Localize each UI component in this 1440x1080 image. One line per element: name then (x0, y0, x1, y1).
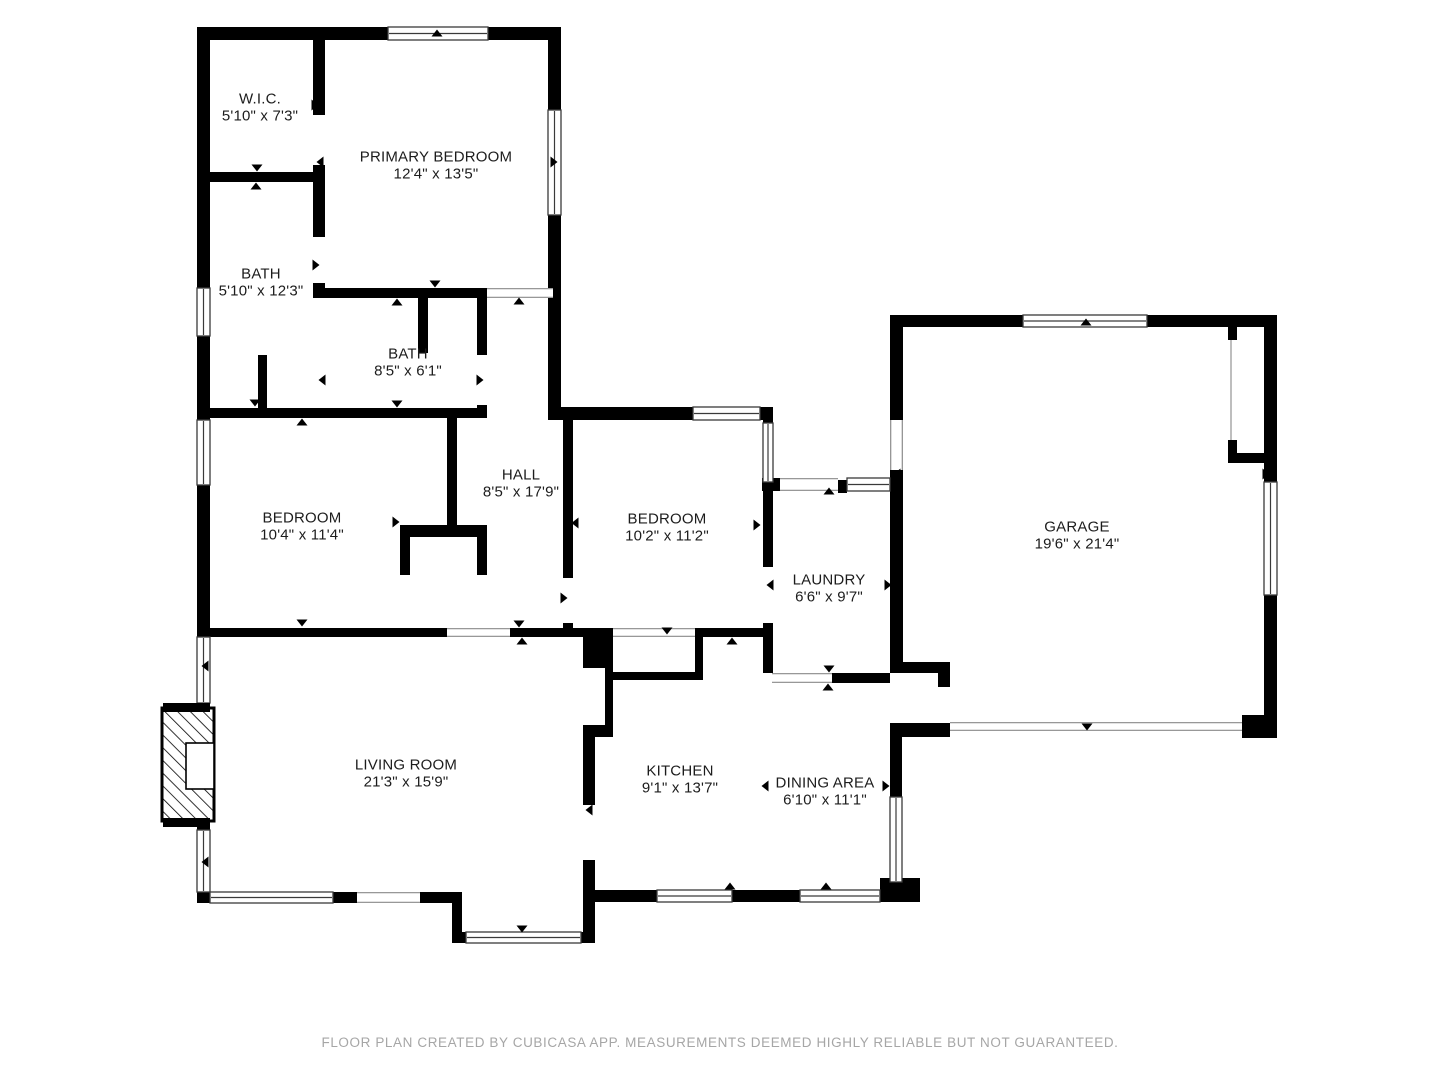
room-label-bath-2: BATH8'5" x 6'1" (374, 347, 442, 380)
door-direction-marker (392, 299, 403, 306)
wall-segment (890, 315, 903, 420)
door-direction-marker (821, 883, 832, 890)
window-glyph (693, 407, 760, 420)
room-label-kitchen: KITCHEN9'1" x 13'7" (642, 764, 718, 797)
wall-segment (197, 27, 561, 40)
door-opening (950, 722, 1242, 731)
door-opening (772, 673, 832, 683)
wall-segment (890, 470, 903, 662)
window-glyph (197, 420, 210, 485)
door-direction-marker (430, 281, 441, 288)
door-direction-marker (477, 375, 484, 386)
wall-segment (838, 480, 847, 493)
wall-segment (583, 725, 613, 737)
door-direction-marker (313, 260, 320, 271)
wall-segment (400, 537, 410, 575)
window-glyph (1264, 482, 1277, 595)
door-direction-marker (883, 781, 890, 792)
room-label-dining-area: DINING AREA6'10" x 11'1" (776, 776, 875, 809)
wall-segment (563, 628, 613, 637)
door-direction-marker (514, 298, 525, 305)
wall-segment (313, 182, 325, 237)
wall-segment (400, 525, 487, 537)
room-label-bedroom-right: BEDROOM10'2" x 11'2" (625, 512, 709, 545)
door-direction-marker (561, 593, 568, 604)
door-opening (357, 892, 420, 903)
wall-segment (197, 892, 210, 903)
window-glyph (890, 797, 902, 882)
wall-segment (832, 673, 890, 683)
room-label-living-room: LIVING ROOM21'3" x 15'9" (355, 758, 457, 791)
room-label-garage: GARAGE19'6" x 21'4" (1035, 520, 1120, 553)
floor-plan-drawing (0, 0, 1440, 1080)
door-direction-marker (725, 883, 736, 890)
wall-segment (420, 892, 462, 903)
window-glyph (800, 890, 880, 902)
wall-segment (763, 482, 773, 567)
wall-segment (563, 420, 573, 578)
window-glyph (466, 932, 581, 943)
room-label-primary-bedroom: PRIMARY BEDROOM12'4" x 13'5" (360, 150, 512, 183)
wall-segment (333, 892, 357, 903)
wall-segment (1228, 453, 1264, 463)
door-direction-marker (393, 517, 400, 528)
door-direction-marker (823, 684, 834, 691)
door-opening (447, 628, 510, 637)
wall-segment (418, 288, 428, 353)
wall-segment (197, 628, 447, 637)
wall-segment (477, 537, 487, 575)
door-direction-marker (252, 165, 263, 172)
wall-segment (763, 407, 773, 423)
door-direction-marker (251, 183, 262, 190)
wall-segment (313, 283, 325, 288)
wall-segment (1242, 715, 1277, 738)
door-direction-marker (762, 781, 769, 792)
door-direction-marker (586, 805, 593, 816)
door-direction-marker (517, 638, 528, 645)
door-direction-marker (824, 666, 835, 673)
door-direction-marker (297, 419, 308, 426)
creator-disclaimer: FLOOR PLAN CREATED BY CUBICASA APP. MEAS… (321, 1035, 1118, 1050)
window-glyph (197, 288, 210, 336)
door-direction-marker (767, 580, 774, 591)
door-opening (890, 420, 903, 470)
wall-segment (695, 628, 765, 637)
room-label-wic: W.I.C.5'10" x 7'3" (222, 92, 298, 125)
wall-segment (583, 737, 595, 805)
door-direction-marker (754, 520, 761, 531)
wall-segment (1228, 327, 1237, 340)
wall-segment (605, 672, 703, 680)
room-label-bath-1: BATH5'10" x 12'3" (219, 267, 304, 300)
window-glyph (210, 892, 333, 903)
fireplace (162, 703, 214, 827)
wall-segment (548, 27, 561, 420)
door-direction-marker (297, 620, 308, 627)
window-glyph (657, 890, 732, 902)
wall-segment (938, 662, 950, 687)
door-direction-marker (392, 401, 403, 408)
wall-segment (447, 418, 457, 525)
door-direction-marker (319, 375, 326, 386)
door-direction-marker (514, 621, 525, 628)
room-label-bedroom-left: BEDROOM10'4" x 11'4" (260, 511, 344, 544)
window-glyph (847, 478, 890, 491)
wall-segment (313, 288, 487, 298)
fireplace-firebox (186, 743, 214, 789)
wall-segment (477, 288, 487, 355)
door-opening (613, 628, 695, 637)
window-glyph (763, 423, 773, 482)
door-direction-marker (727, 638, 738, 645)
wall-segment (890, 727, 902, 797)
wall-segment (197, 408, 487, 418)
wall-segment (583, 860, 595, 942)
room-label-hall: HALL8'5" x 17'9" (483, 468, 559, 501)
door-opening (487, 288, 553, 298)
wall-segment (695, 628, 703, 680)
wall-segment (763, 623, 773, 673)
room-label-laundry: LAUNDRY6'6" x 9'7" (793, 573, 866, 606)
wall-segment (197, 172, 325, 182)
floor-plan-page: W.I.C.5'10" x 7'3" PRIMARY BEDROOM12'4" … (0, 0, 1440, 1080)
